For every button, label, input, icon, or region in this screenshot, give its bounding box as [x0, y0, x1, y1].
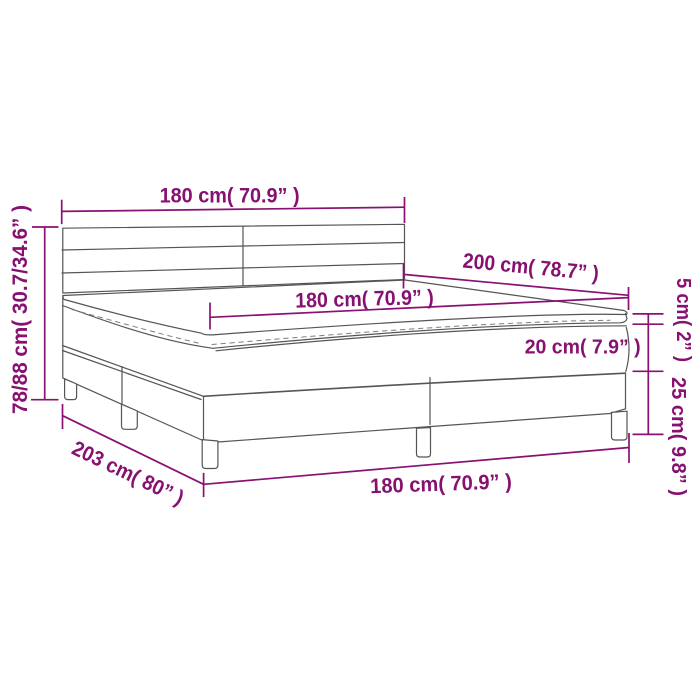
- svg-text:180 cm( 70.9” ): 180 cm( 70.9” ): [295, 286, 434, 313]
- svg-text:78/88 cm( 30.7/34.6” ): 78/88 cm( 30.7/34.6” ): [9, 205, 32, 414]
- svg-text:20 cm( 7.9” ): 20 cm( 7.9” ): [525, 337, 641, 359]
- svg-text:200 cm( 78.7” ): 200 cm( 78.7” ): [462, 250, 600, 286]
- svg-text:5 cm( 2” ): 5 cm( 2” ): [672, 278, 694, 362]
- svg-text:180 cm( 70.9” ): 180 cm( 70.9” ): [160, 184, 300, 207]
- svg-text:180 cm( 70.9” ): 180 cm( 70.9” ): [370, 470, 512, 498]
- svg-text:25 cm( 9.8” ): 25 cm( 9.8” ): [667, 377, 689, 496]
